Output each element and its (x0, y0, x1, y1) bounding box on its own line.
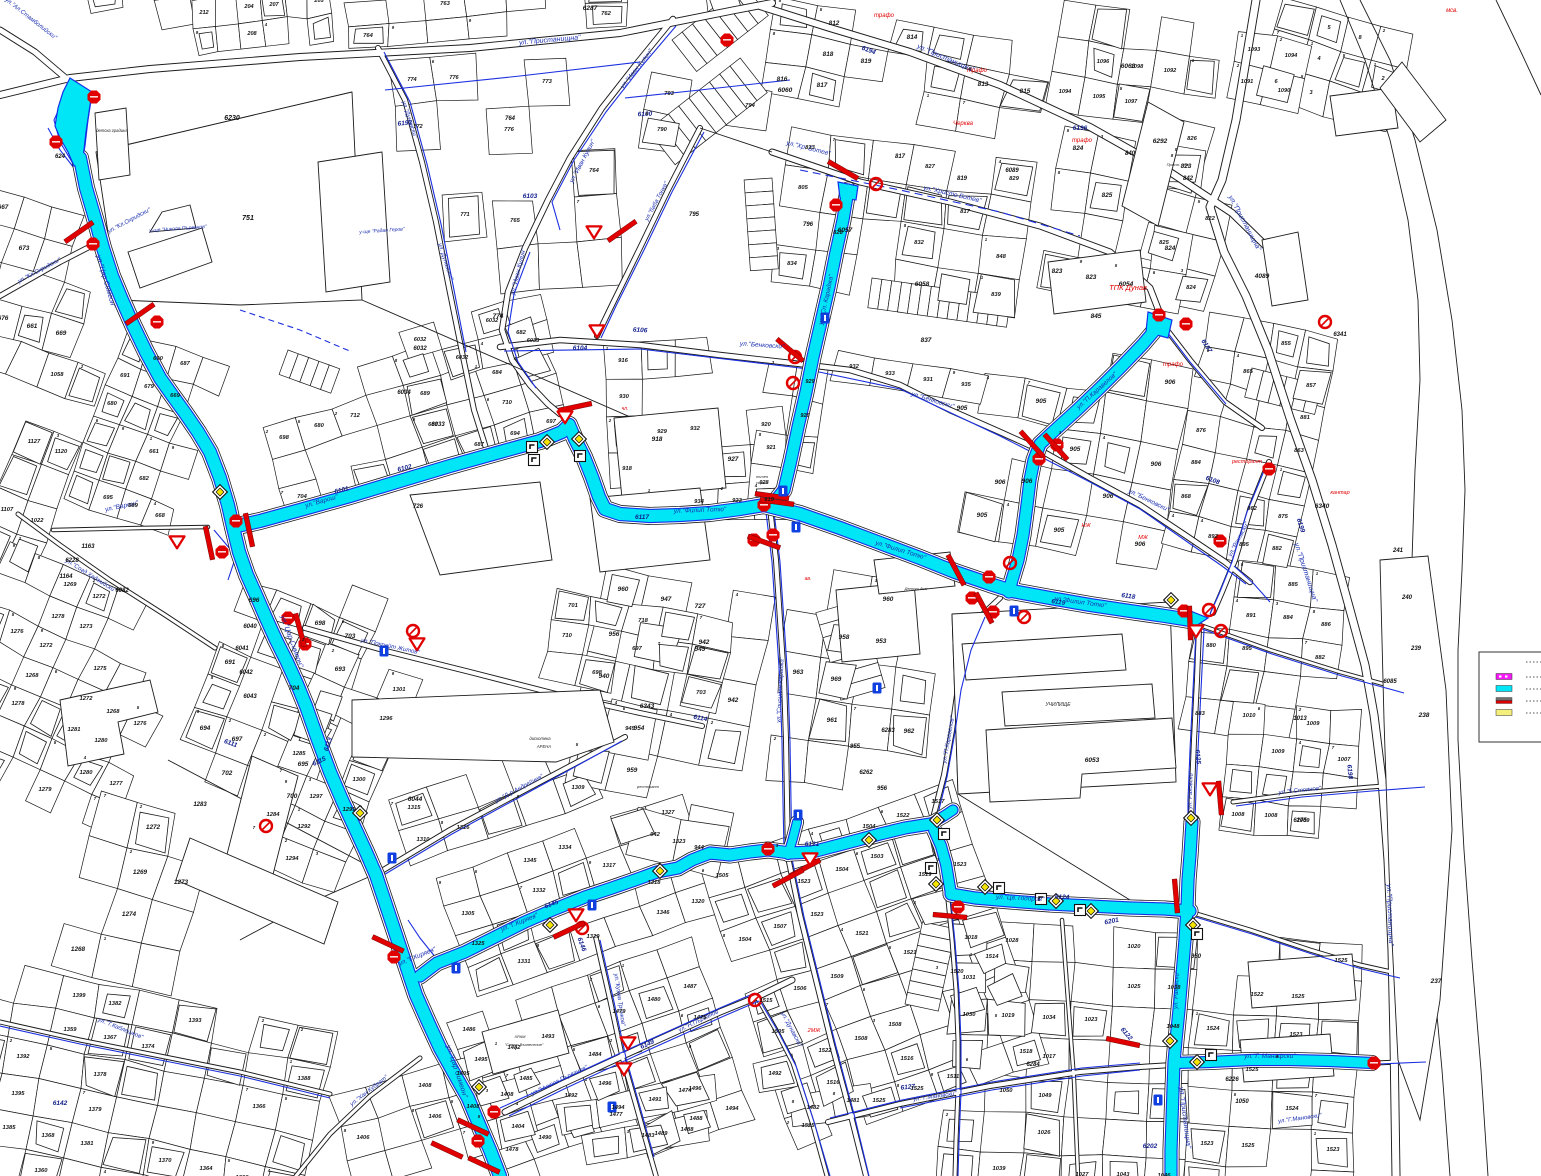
svg-text:1297: 1297 (310, 794, 324, 800)
svg-text:1309: 1309 (572, 785, 586, 791)
svg-text:818: 818 (823, 51, 834, 58)
svg-text:954: 954 (634, 725, 645, 732)
svg-text:679: 679 (144, 384, 154, 390)
svg-text:208: 208 (246, 31, 257, 37)
svg-text:1268: 1268 (107, 709, 121, 715)
svg-text:669: 669 (170, 393, 180, 399)
svg-text:6044: 6044 (408, 796, 423, 803)
svg-text:918: 918 (652, 436, 663, 443)
svg-text:689: 689 (420, 391, 430, 397)
svg-text:6032: 6032 (413, 346, 427, 352)
svg-text:895: 895 (1242, 646, 1252, 652)
svg-text:958: 958 (839, 634, 850, 641)
svg-text:848: 848 (996, 254, 1006, 260)
svg-text:6041: 6041 (235, 646, 249, 652)
svg-text:1107: 1107 (1, 507, 14, 513)
svg-text:667: 667 (0, 204, 9, 211)
svg-text:1028: 1028 (1006, 938, 1020, 944)
svg-text:865: 865 (1243, 369, 1253, 375)
svg-text:895: 895 (1239, 542, 1249, 548)
svg-text:842: 842 (1183, 176, 1194, 182)
svg-text:1090: 1090 (1278, 88, 1291, 94)
svg-text:1031: 1031 (963, 975, 976, 981)
svg-text:6104: 6104 (573, 345, 588, 352)
svg-text:1315: 1315 (408, 805, 422, 811)
svg-text:1020: 1020 (1128, 944, 1142, 950)
svg-text:1408: 1408 (467, 1104, 481, 1110)
svg-text:1095: 1095 (1093, 94, 1106, 100)
svg-text:790: 790 (657, 127, 667, 133)
svg-text:6117: 6117 (635, 514, 649, 521)
svg-text:6292: 6292 (1153, 138, 1168, 145)
svg-text:6106: 6106 (633, 327, 648, 335)
svg-text:1017: 1017 (1043, 1054, 1057, 1060)
svg-text:682: 682 (139, 476, 149, 482)
svg-text:819: 819 (957, 176, 968, 182)
svg-text:928: 928 (759, 480, 769, 486)
svg-text:1507: 1507 (774, 924, 788, 930)
svg-text:6032: 6032 (414, 337, 427, 343)
svg-text:1023: 1023 (1085, 1017, 1099, 1023)
svg-text:ресторант: ресторант (1231, 459, 1263, 465)
svg-text:6262: 6262 (859, 770, 873, 776)
svg-text:1009: 1009 (1272, 749, 1286, 755)
svg-text:1477: 1477 (610, 1112, 624, 1118)
svg-text:1030: 1030 (963, 1012, 977, 1018)
svg-text:1496: 1496 (689, 1086, 703, 1092)
svg-text:703: 703 (696, 690, 706, 696)
svg-text:1359: 1359 (64, 1027, 78, 1033)
svg-text:1519: 1519 (919, 872, 933, 878)
svg-text:1295: 1295 (343, 807, 357, 813)
svg-text:1008: 1008 (1232, 812, 1246, 818)
svg-text:кантар: кантар (1330, 490, 1349, 496)
svg-text:697: 697 (546, 419, 556, 425)
svg-text:676: 676 (0, 315, 9, 322)
svg-text:880: 880 (1206, 643, 1216, 649)
svg-text:1332: 1332 (533, 888, 547, 894)
svg-text:826: 826 (1187, 136, 1197, 142)
svg-text:689: 689 (128, 503, 138, 509)
svg-text:1039: 1039 (993, 1166, 1007, 1172)
svg-text:1272: 1272 (40, 643, 54, 649)
svg-text:1305: 1305 (462, 911, 476, 917)
svg-text:819: 819 (861, 58, 872, 65)
svg-text:240: 240 (1401, 595, 1413, 601)
svg-text:6042: 6042 (239, 670, 253, 676)
svg-text:710: 710 (562, 633, 572, 639)
svg-text:1475: 1475 (694, 1015, 708, 1021)
svg-text:698: 698 (279, 435, 289, 441)
svg-text:ТПК Дунав: ТПК Дунав (1109, 283, 1147, 292)
svg-text:1487: 1487 (684, 984, 698, 990)
svg-text:1320: 1320 (692, 899, 706, 905)
svg-text:1388: 1388 (298, 1076, 312, 1082)
svg-text:1127: 1127 (28, 439, 41, 445)
svg-text:701: 701 (568, 603, 578, 609)
svg-text:6085: 6085 (1383, 679, 1397, 685)
svg-text:1276: 1276 (134, 721, 148, 727)
svg-text:828: 828 (833, 230, 843, 236)
svg-text:834: 834 (787, 261, 797, 267)
svg-text:1406: 1406 (357, 1135, 371, 1141)
svg-text:1495: 1495 (475, 1057, 489, 1063)
svg-text:1491: 1491 (649, 1097, 662, 1103)
svg-text:961: 961 (827, 717, 838, 724)
svg-text:905: 905 (957, 405, 968, 412)
svg-text:794: 794 (745, 103, 755, 109)
svg-text:945: 945 (625, 726, 635, 732)
svg-text:1524: 1524 (1286, 1106, 1300, 1112)
svg-text:718: 718 (638, 618, 648, 624)
svg-text:680: 680 (107, 401, 117, 407)
svg-text:817: 817 (817, 82, 828, 89)
svg-text:4089: 4089 (1254, 273, 1270, 280)
svg-text:1269: 1269 (133, 869, 148, 876)
svg-text:1404: 1404 (512, 1124, 526, 1130)
svg-text:698: 698 (592, 670, 602, 676)
svg-text:1273: 1273 (174, 879, 189, 886)
svg-text:1310: 1310 (417, 837, 431, 843)
svg-text:702: 702 (222, 770, 233, 777)
svg-text:6287: 6287 (583, 5, 598, 12)
svg-text:704: 704 (289, 685, 300, 692)
svg-text:698: 698 (315, 620, 326, 627)
svg-text:683: 683 (428, 422, 438, 428)
svg-text:816: 816 (777, 76, 788, 83)
svg-text:1301: 1301 (393, 687, 406, 693)
svg-text:1163: 1163 (82, 544, 96, 550)
svg-text:906: 906 (1151, 461, 1162, 468)
svg-text:695: 695 (298, 761, 309, 768)
svg-text:825: 825 (1102, 192, 1113, 199)
svg-text:703: 703 (345, 633, 356, 640)
svg-text:1523: 1523 (798, 879, 812, 885)
svg-text:1367: 1367 (104, 1035, 118, 1041)
svg-text:1370: 1370 (159, 1158, 173, 1164)
svg-text:1013: 1013 (1293, 716, 1307, 722)
svg-text:6196: 6196 (1073, 125, 1088, 132)
svg-text:932: 932 (690, 426, 700, 432)
svg-text:969: 969 (831, 676, 842, 683)
svg-text:6032: 6032 (486, 318, 499, 324)
svg-text:950: 950 (1191, 954, 1202, 960)
svg-text:6198: 6198 (1345, 764, 1353, 779)
svg-text:1049: 1049 (1039, 1093, 1053, 1099)
svg-text:6058: 6058 (915, 281, 930, 288)
svg-text:1366: 1366 (253, 1104, 267, 1110)
svg-text:НЖ: НЖ (1081, 523, 1091, 529)
svg-text:1008: 1008 (1265, 813, 1279, 819)
svg-text:6103: 6103 (523, 193, 538, 200)
svg-text:6082: 6082 (115, 588, 129, 594)
svg-text:923: 923 (732, 498, 742, 504)
svg-text:1516: 1516 (901, 1056, 915, 1062)
svg-text:трафо: трафо (1072, 138, 1093, 144)
svg-text:1486: 1486 (463, 1027, 477, 1033)
svg-text:1521: 1521 (904, 950, 917, 956)
svg-text:6040: 6040 (243, 624, 257, 630)
svg-text:1278: 1278 (12, 701, 26, 707)
svg-text:1277: 1277 (110, 781, 124, 787)
svg-text:905: 905 (977, 512, 988, 519)
svg-text:823: 823 (1052, 268, 1063, 275)
svg-text:1317: 1317 (603, 863, 617, 869)
svg-text:1273: 1273 (80, 624, 94, 630)
svg-text:1275: 1275 (94, 666, 108, 672)
svg-text:905: 905 (1054, 527, 1065, 534)
svg-text:963: 963 (793, 669, 804, 676)
svg-text:857: 857 (1306, 383, 1316, 389)
svg-text:212: 212 (198, 10, 209, 16)
svg-text:Детски дом: Детски дом (904, 586, 928, 591)
svg-text:1525: 1525 (911, 1086, 925, 1092)
svg-text:1490: 1490 (539, 1135, 553, 1141)
svg-text:824: 824 (1186, 285, 1196, 291)
svg-text:1281: 1281 (68, 727, 81, 733)
svg-text:1523: 1523 (811, 912, 825, 918)
svg-text:1300: 1300 (353, 777, 367, 783)
svg-text:817: 817 (895, 154, 906, 160)
svg-text:1019: 1019 (1002, 1013, 1016, 1019)
svg-text:832: 832 (914, 240, 924, 246)
svg-text:1278: 1278 (52, 614, 66, 620)
svg-text:697: 697 (232, 736, 243, 743)
svg-text:824: 824 (1073, 145, 1084, 152)
svg-text:710: 710 (502, 400, 512, 406)
svg-text:687: 687 (180, 361, 190, 367)
svg-text:трафо: трафо (874, 13, 895, 19)
svg-text:1483: 1483 (642, 1133, 656, 1139)
svg-text:1269: 1269 (64, 582, 78, 588)
svg-text:773: 773 (542, 79, 552, 85)
svg-text:762: 762 (601, 11, 611, 17)
svg-text:1009: 1009 (1297, 818, 1311, 824)
svg-text:1508: 1508 (855, 1036, 869, 1042)
svg-text:1009: 1009 (1307, 721, 1321, 727)
svg-text:796: 796 (803, 222, 814, 228)
svg-text:962: 962 (904, 728, 915, 735)
svg-text:1374: 1374 (142, 1044, 156, 1050)
svg-text:956: 956 (609, 631, 620, 638)
svg-text:921: 921 (766, 445, 775, 451)
svg-text:1523: 1523 (954, 862, 968, 868)
svg-text:6033: 6033 (527, 338, 540, 344)
svg-text:855: 855 (1281, 341, 1291, 347)
svg-text:1027: 1027 (1076, 1172, 1090, 1176)
svg-text:886: 886 (1321, 622, 1331, 628)
svg-text:884: 884 (1191, 460, 1201, 466)
svg-text:1094: 1094 (1285, 53, 1298, 59)
svg-text:241: 241 (1392, 548, 1404, 554)
svg-text:1503: 1503 (871, 854, 885, 860)
svg-text:1385: 1385 (3, 1125, 17, 1131)
svg-text:1509: 1509 (831, 974, 845, 980)
svg-text:ХРАМ: ХРАМ (513, 1034, 526, 1039)
svg-text:1094: 1094 (1059, 89, 1072, 95)
svg-text:1292: 1292 (298, 824, 312, 830)
svg-text:933: 933 (885, 371, 895, 377)
svg-text:1280: 1280 (95, 738, 109, 744)
svg-text:1496: 1496 (599, 1081, 613, 1087)
svg-text:926: 926 (800, 413, 810, 419)
svg-text:1272: 1272 (93, 594, 107, 600)
svg-text:959: 959 (627, 767, 638, 774)
svg-text:833: 833 (805, 145, 815, 151)
svg-text:712: 712 (350, 413, 360, 419)
svg-text:764: 764 (363, 33, 373, 39)
svg-text:883: 883 (1195, 711, 1205, 717)
svg-text:1505: 1505 (716, 873, 730, 879)
svg-text:1524: 1524 (1207, 1026, 1221, 1032)
svg-text:чл.: чл. (622, 406, 629, 412)
svg-text:1050: 1050 (1000, 1088, 1014, 1094)
svg-text:862: 862 (1247, 506, 1257, 512)
svg-text:1378: 1378 (94, 1072, 108, 1078)
svg-text:1022: 1022 (31, 518, 45, 524)
svg-text:905: 905 (1070, 446, 1081, 453)
svg-text:1025: 1025 (1128, 984, 1142, 990)
svg-text:1268: 1268 (26, 673, 40, 679)
svg-text:1368: 1368 (42, 1133, 56, 1139)
svg-text:1522: 1522 (819, 1048, 833, 1054)
svg-text:935: 935 (961, 382, 971, 388)
svg-text:1098: 1098 (1131, 64, 1144, 70)
svg-text:868: 868 (1181, 494, 1191, 500)
svg-text:827: 827 (925, 164, 935, 170)
svg-text:детска градина: детска градина (96, 128, 128, 133)
svg-text:1096: 1096 (1097, 59, 1110, 65)
svg-text:6032: 6032 (456, 355, 469, 361)
svg-text:1283: 1283 (193, 802, 207, 808)
svg-text:пътен: пътен (756, 475, 769, 479)
svg-text:693: 693 (335, 666, 346, 673)
svg-text:1525: 1525 (873, 1098, 887, 1104)
svg-text:891: 891 (1246, 613, 1256, 619)
svg-text:1505: 1505 (772, 1029, 786, 1035)
svg-text:876: 876 (1196, 428, 1206, 434)
svg-text:1058: 1058 (51, 372, 65, 378)
svg-text:ав.: ав. (805, 576, 812, 582)
svg-text:829: 829 (1009, 176, 1019, 182)
svg-text:905: 905 (1036, 398, 1047, 405)
svg-text:690: 690 (153, 356, 163, 362)
svg-text:1276: 1276 (11, 629, 25, 635)
svg-text:1272: 1272 (80, 696, 94, 702)
svg-text:6228: 6228 (65, 558, 79, 564)
svg-text:840: 840 (1125, 151, 1136, 157)
svg-text:812: 812 (829, 20, 840, 27)
svg-text:823: 823 (1181, 163, 1192, 170)
svg-text:1284: 1284 (267, 812, 281, 818)
svg-text:1364: 1364 (200, 1166, 214, 1172)
svg-text:694: 694 (510, 431, 520, 437)
svg-text:1294: 1294 (286, 856, 300, 862)
svg-text:1504: 1504 (739, 937, 753, 943)
svg-text:1482: 1482 (807, 1105, 821, 1111)
svg-text:875: 875 (1278, 514, 1288, 520)
svg-text:881: 881 (1300, 415, 1310, 421)
svg-text:920: 920 (761, 422, 771, 428)
svg-text:885: 885 (1288, 582, 1298, 588)
svg-text:1346: 1346 (657, 910, 671, 916)
svg-text:673: 673 (19, 245, 30, 252)
svg-text:1478: 1478 (506, 1147, 520, 1153)
svg-text:237: 237 (1430, 978, 1442, 985)
svg-text:700: 700 (287, 793, 298, 800)
svg-text:1484: 1484 (589, 1052, 603, 1058)
svg-text:1334: 1334 (559, 845, 573, 851)
svg-text:726: 726 (413, 504, 424, 510)
svg-text:1504: 1504 (863, 824, 877, 830)
svg-text:6043: 6043 (243, 694, 257, 700)
svg-text:1506: 1506 (794, 986, 808, 992)
svg-text:6340: 6340 (1315, 503, 1330, 510)
svg-text:813: 813 (978, 81, 989, 88)
svg-text:1523: 1523 (1290, 1032, 1304, 1038)
svg-text:6226: 6226 (1225, 1077, 1239, 1083)
svg-text:931: 931 (923, 377, 933, 383)
svg-text:6053: 6053 (1085, 757, 1100, 764)
svg-text:1525: 1525 (1242, 1143, 1256, 1149)
svg-text:1518: 1518 (1020, 1049, 1034, 1055)
svg-text:956: 956 (877, 786, 888, 792)
svg-text:1048: 1048 (1167, 1024, 1181, 1030)
svg-text:6124: 6124 (1055, 894, 1070, 902)
svg-text:1345: 1345 (524, 858, 538, 864)
svg-text:1494: 1494 (612, 1105, 626, 1111)
svg-text:1393: 1393 (189, 1018, 203, 1024)
svg-text:1026: 1026 (1038, 1130, 1052, 1136)
svg-text:765: 765 (510, 218, 520, 224)
svg-text:1274: 1274 (122, 911, 137, 918)
svg-text:814: 814 (907, 34, 918, 41)
svg-text:1521: 1521 (856, 931, 869, 937)
svg-text:1525: 1525 (1246, 1067, 1260, 1073)
svg-text:1395: 1395 (12, 1091, 26, 1097)
svg-text:1038: 1038 (1168, 985, 1182, 991)
svg-text:764: 764 (505, 116, 516, 122)
svg-text:932: 932 (849, 364, 859, 370)
svg-text:1399: 1399 (73, 993, 87, 999)
svg-text:6284: 6284 (1026, 1062, 1040, 1068)
svg-text:205: 205 (313, 0, 324, 4)
svg-text:6283: 6283 (881, 728, 895, 734)
svg-text:1479: 1479 (613, 1009, 627, 1015)
svg-text:6125: 6125 (1193, 749, 1201, 764)
svg-text:884: 884 (1283, 615, 1293, 621)
svg-text:1481: 1481 (847, 1098, 860, 1104)
svg-text:696: 696 (249, 597, 260, 604)
svg-text:892: 892 (1208, 534, 1218, 540)
svg-text:823: 823 (1086, 274, 1097, 281)
svg-text:1525: 1525 (1292, 994, 1306, 1000)
svg-text:204: 204 (243, 4, 254, 10)
svg-text:1406: 1406 (429, 1114, 443, 1120)
svg-text:1525: 1525 (1335, 958, 1349, 964)
svg-text:691: 691 (120, 373, 130, 379)
svg-text:805: 805 (798, 185, 808, 191)
svg-text:1280: 1280 (80, 770, 94, 776)
svg-text:919: 919 (764, 497, 774, 503)
svg-text:6089: 6089 (1005, 168, 1019, 174)
svg-text:845: 845 (1091, 313, 1102, 320)
svg-text:1493: 1493 (542, 1034, 556, 1040)
svg-text:1520: 1520 (951, 969, 965, 975)
svg-text:1508: 1508 (889, 1022, 903, 1028)
svg-text:1488: 1488 (681, 1127, 695, 1133)
svg-text:1392: 1392 (17, 1054, 31, 1060)
